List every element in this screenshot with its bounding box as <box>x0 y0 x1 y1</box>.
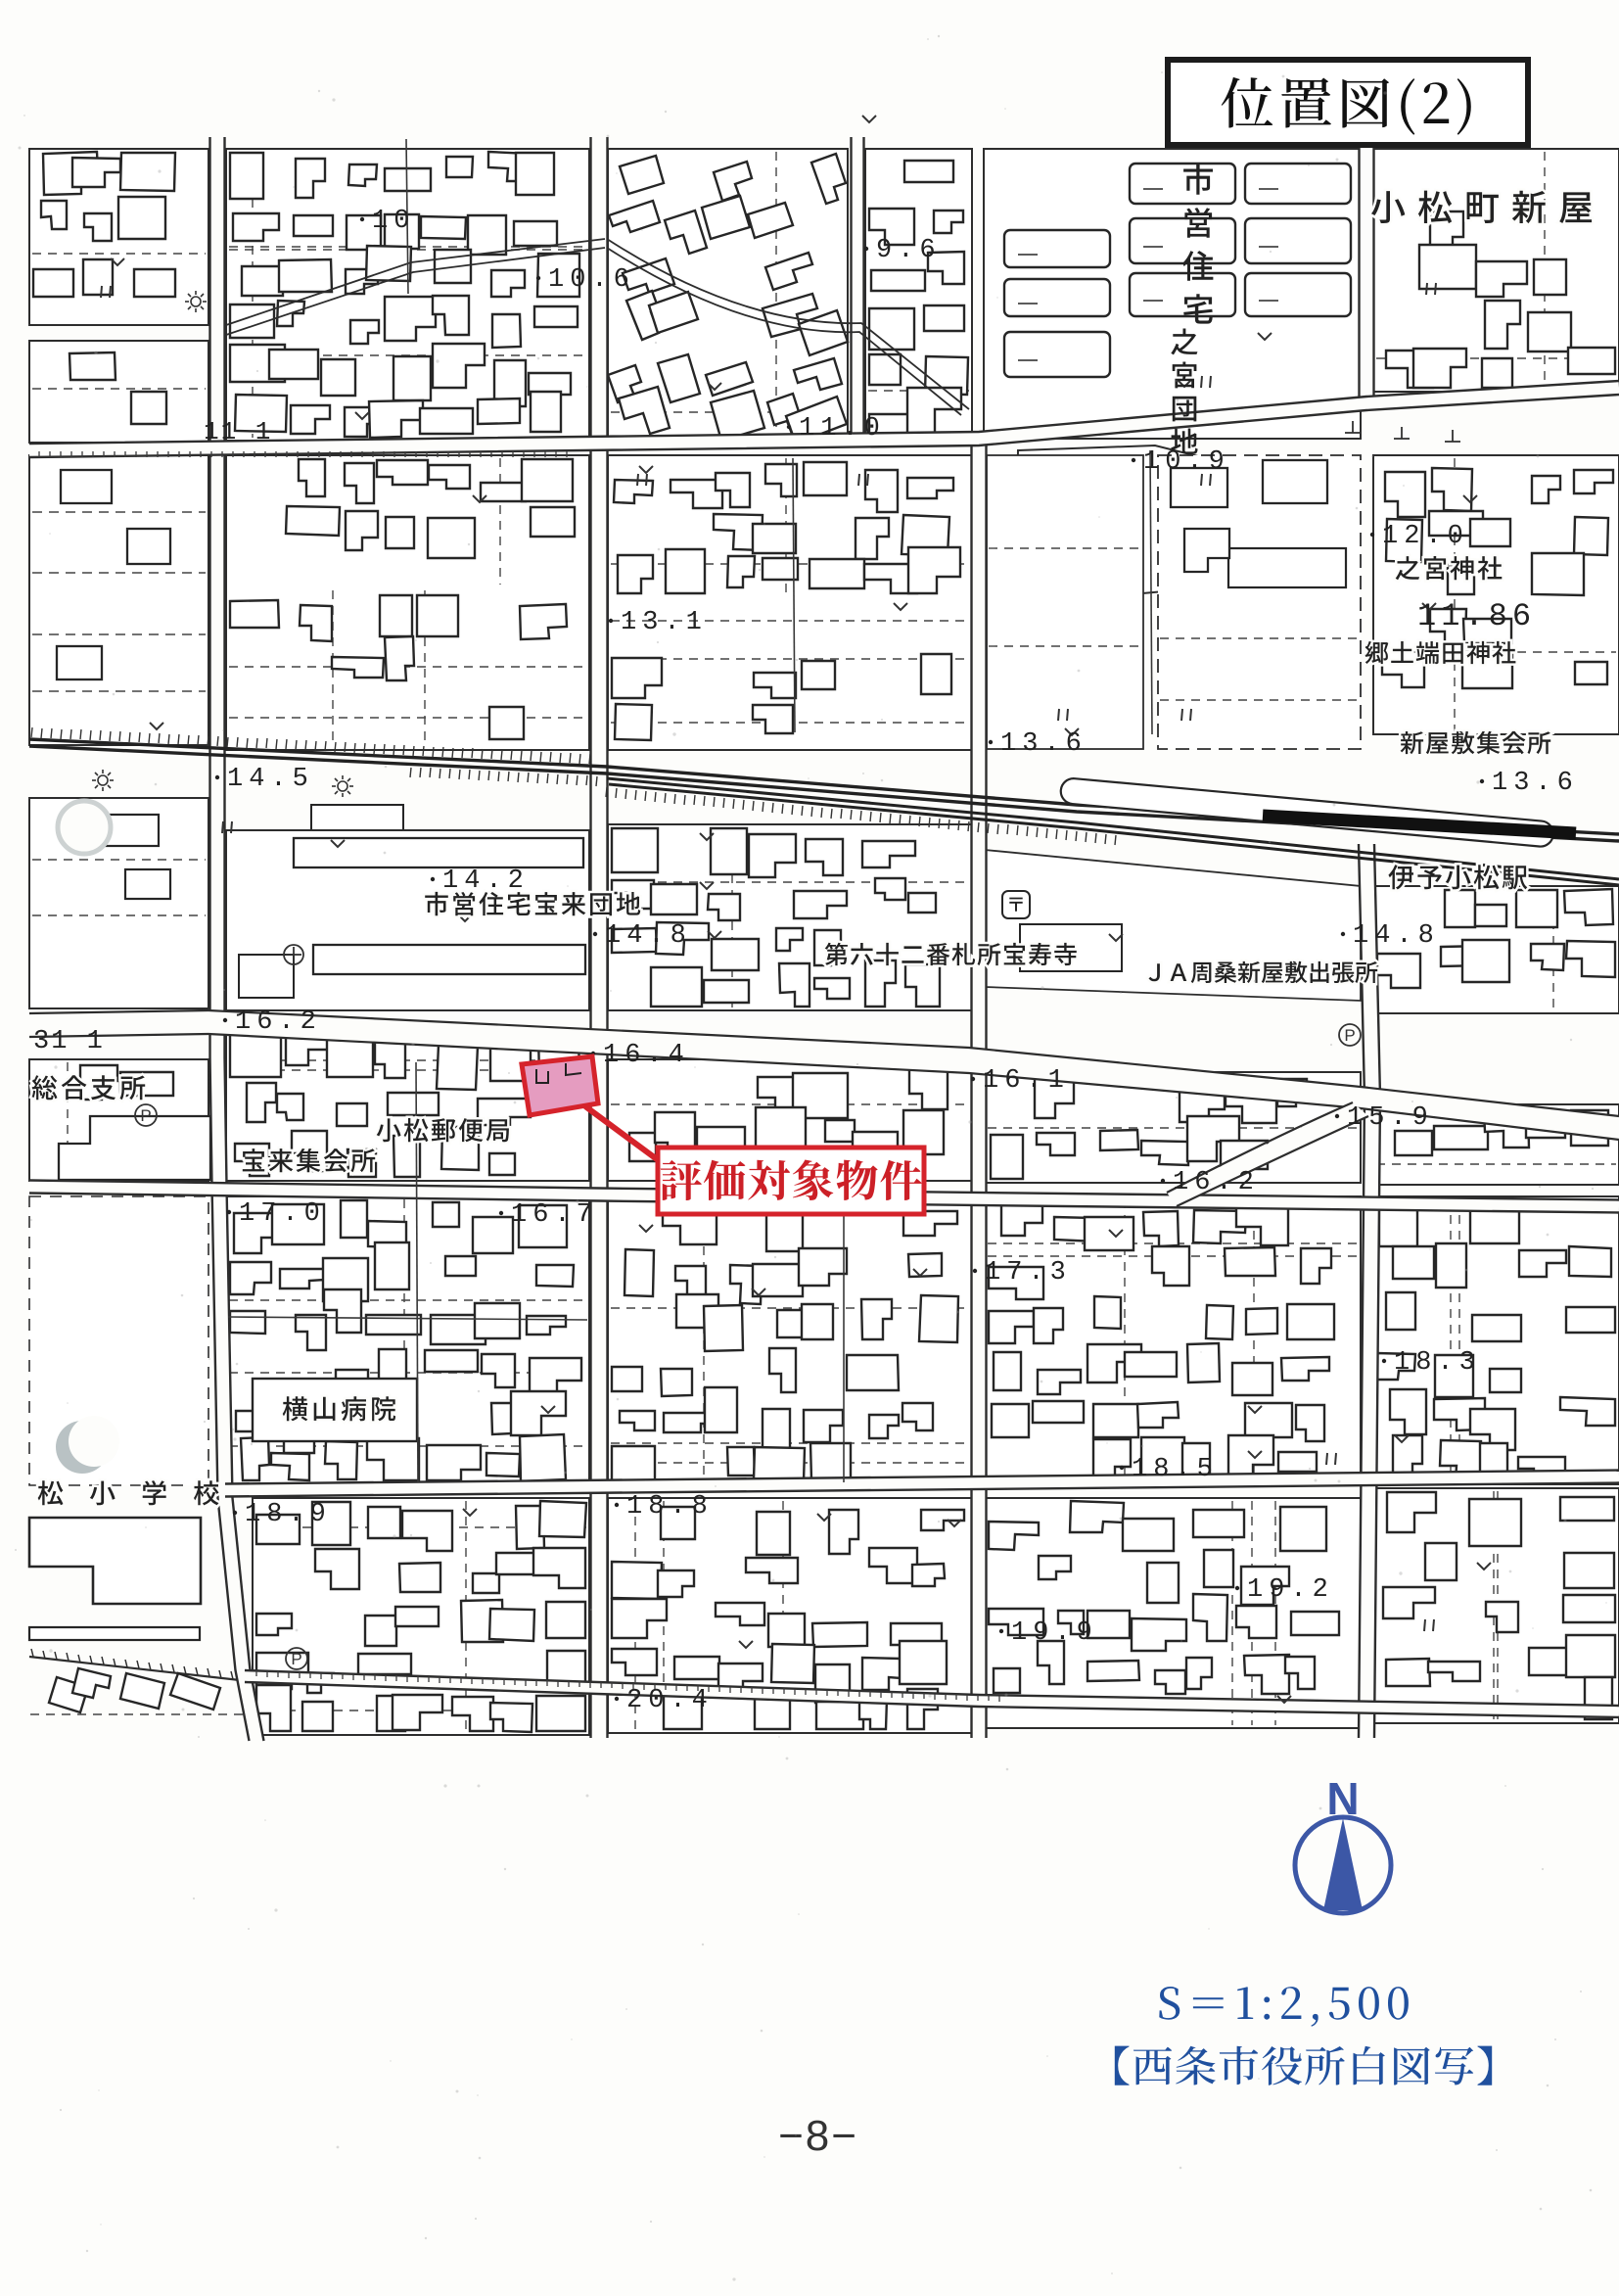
svg-text:16.1: 16.1 <box>983 1066 1070 1096</box>
svg-text:18.3: 18.3 <box>1394 1348 1481 1378</box>
svg-text:17.0: 17.0 <box>239 1199 326 1229</box>
svg-text:19.2: 19.2 <box>1247 1575 1334 1605</box>
svg-text:10.6: 10.6 <box>548 265 635 295</box>
svg-text:16.7: 16.7 <box>511 1200 598 1230</box>
svg-text:P: P <box>291 1650 301 1668</box>
svg-text:19.9: 19.9 <box>1011 1618 1098 1648</box>
svg-text:14.8: 14.8 <box>1353 921 1440 951</box>
svg-text:13.1: 13.1 <box>621 608 708 637</box>
svg-text:14.2: 14.2 <box>442 867 530 896</box>
svg-text:18.8: 18.8 <box>626 1492 714 1522</box>
svg-text:14.8: 14.8 <box>605 921 692 951</box>
svg-text:15.9: 15.9 <box>1347 1103 1434 1133</box>
svg-text:12.0: 12.0 <box>1382 522 1469 551</box>
svg-text:P: P <box>1344 1026 1355 1045</box>
svg-text:16.2: 16.2 <box>235 1007 322 1037</box>
svg-text:P: P <box>140 1106 151 1125</box>
svg-text:10: 10 <box>372 207 415 236</box>
svg-text:17.3: 17.3 <box>985 1258 1072 1288</box>
svg-text:18.9: 18.9 <box>245 1500 332 1529</box>
svg-text:16.2: 16.2 <box>1173 1168 1260 1197</box>
svg-text:−8−: −8− <box>778 2112 858 2160</box>
svg-text:31 1: 31 1 <box>33 1027 105 1056</box>
svg-text:18.5: 18.5 <box>1132 1455 1219 1484</box>
svg-text:14.5: 14.5 <box>227 765 314 794</box>
svg-text:9.6: 9.6 <box>876 236 942 265</box>
svg-text:11.0: 11.0 <box>799 414 886 444</box>
svg-text:20.4: 20.4 <box>626 1686 714 1715</box>
svg-text:N: N <box>1326 1773 1359 1824</box>
svg-text:10.9: 10.9 <box>1143 447 1230 477</box>
svg-text:11.86: 11.86 <box>1417 598 1536 634</box>
svg-text:11 1: 11 1 <box>204 417 272 446</box>
svg-text:13.6: 13.6 <box>1492 769 1579 798</box>
svg-text:13.6: 13.6 <box>1000 729 1087 759</box>
svg-text:16.4: 16.4 <box>603 1041 690 1070</box>
